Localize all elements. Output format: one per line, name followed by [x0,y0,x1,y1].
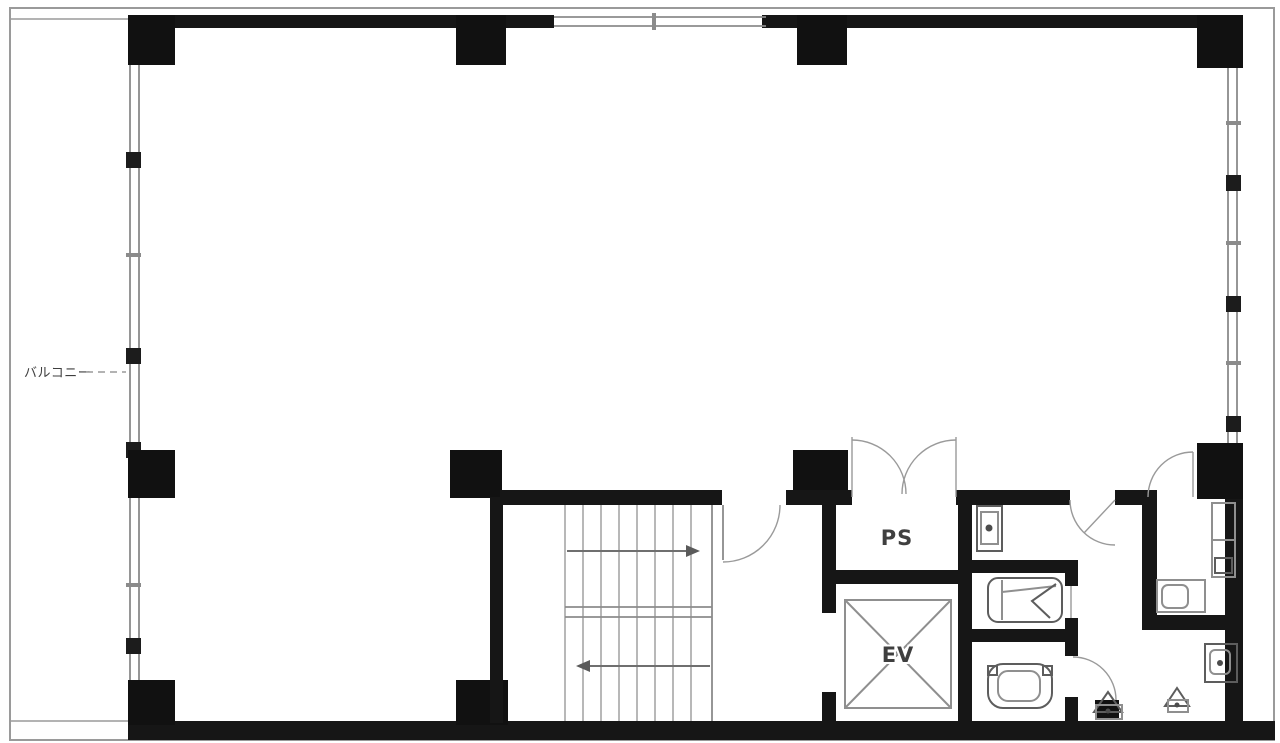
left-window-wall [126,22,141,721]
eave-outline [10,8,1274,740]
floor-drain-right [1165,688,1189,712]
window-mullion [1226,416,1241,432]
ps-label: PS [881,526,914,550]
toilet-corridor-door [1070,500,1115,545]
bottom-wall [128,721,1275,740]
door-leaf [1084,500,1115,533]
drain-dot [1106,709,1111,714]
window-tick [1226,121,1241,125]
column [128,680,175,725]
door-arc [852,440,906,494]
hand-wash-basin [977,506,1002,551]
squat-toilet [988,578,1062,622]
door-arc [902,440,956,494]
wall-segment [956,490,1070,505]
window-mullion [1226,175,1241,191]
floor-plan-canvas: PS EV [0,0,1280,743]
western-toilet [988,664,1052,708]
drain-dot [1175,703,1180,708]
stall-wall [1065,697,1078,723]
drain-dot [986,525,993,532]
vanity-counter [1157,580,1205,612]
stair-arrow-down [576,660,710,672]
window-mullion [1226,296,1241,312]
window-tick [126,583,141,587]
toilet-stalls [965,560,1119,723]
bowl-inner [998,671,1040,701]
window-mullion [126,348,141,364]
window-mullion [126,638,141,654]
top-wall [128,13,1243,30]
door-arc [723,505,780,562]
column [1197,443,1243,499]
column [128,15,175,65]
column [450,450,502,498]
balcony-annotation: バルコニー [24,366,126,381]
stair-arrow-up [567,545,700,557]
column [797,15,847,65]
ev-label: EV [882,643,915,667]
stairwell [490,497,712,723]
window-tick [1226,361,1241,365]
floor-plan-drawing: PS EV [0,0,1280,743]
wall-segment [786,490,852,505]
window-mullion [126,152,141,168]
drain-dot [1217,660,1223,666]
window-tick [1226,241,1241,245]
wall-segment [500,490,722,505]
compartment-wall-horizontal [1142,615,1243,630]
elevator: EV [822,584,951,723]
column [1197,15,1243,68]
double-swing-door [852,437,956,497]
window-tick [652,13,656,30]
column [128,450,175,498]
stair-left-wall [490,497,503,723]
sink-bowl [1162,585,1188,608]
column [456,15,506,65]
balcony-label: バルコニー [24,366,91,381]
building-outline [10,8,1274,740]
ps-ev-divider-wall [822,570,972,584]
stall-wall [1065,560,1078,586]
compartment-wall-vertical [1142,497,1157,630]
stall-wall [1065,618,1078,656]
pan-outline [988,578,1062,622]
arrow-head [686,545,700,557]
stall-wall [965,560,1078,573]
ev-wall-segment [822,584,836,613]
stall-wall [965,629,1078,642]
hall-door [723,505,780,562]
ev-wall-segment [822,692,836,723]
window-tick [126,253,141,257]
ps-right-wall [958,497,972,723]
